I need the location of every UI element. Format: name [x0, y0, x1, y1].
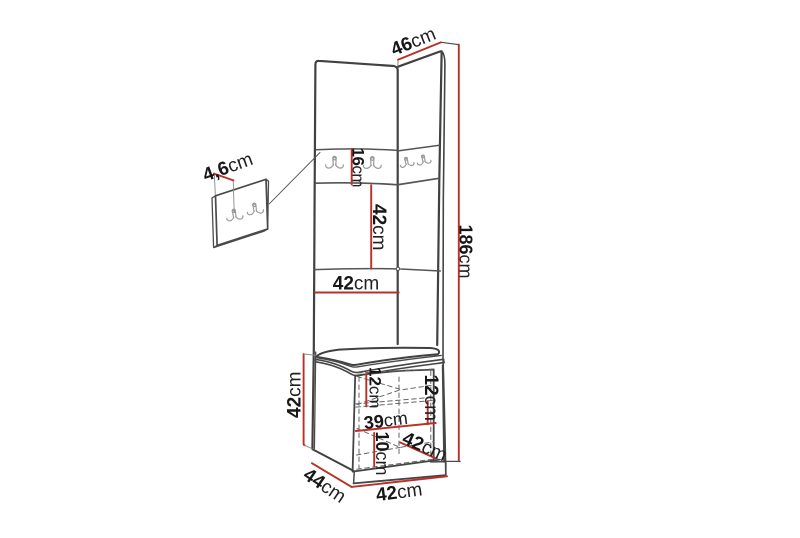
- svg-text:42cm: 42cm: [333, 274, 379, 295]
- svg-text:12cm: 12cm: [366, 367, 385, 409]
- svg-text:12cm: 12cm: [420, 375, 441, 421]
- svg-text:10cm: 10cm: [372, 432, 392, 476]
- svg-text:42cm: 42cm: [368, 204, 389, 250]
- svg-text:16cm: 16cm: [349, 148, 368, 188]
- svg-text:42cm: 42cm: [285, 372, 306, 418]
- svg-text:186cm: 186cm: [456, 225, 476, 279]
